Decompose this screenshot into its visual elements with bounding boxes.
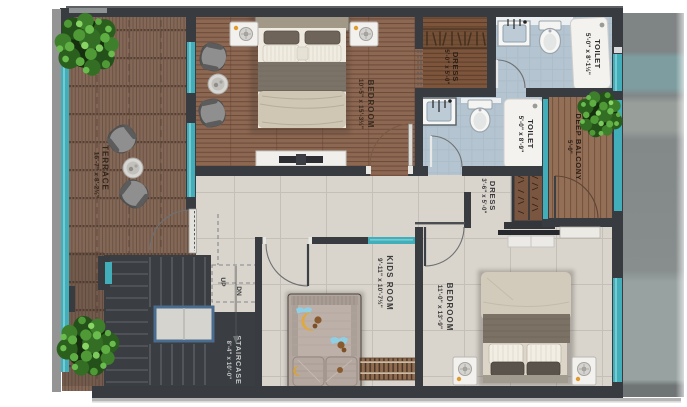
svg-text:5'-0" x 8'-1½": 5'-0" x 8'-1½" (584, 33, 592, 75)
svg-text:KIDS ROOM: KIDS ROOM (385, 255, 394, 310)
svg-text:5'-0" x 8'-9": 5'-0" x 8'-9" (517, 116, 524, 153)
svg-text:5'-0": 5'-0" (566, 140, 572, 154)
svg-text:TOILET: TOILET (526, 119, 535, 149)
svg-text:16'-7" x 8'-2½": 16'-7" x 8'-2½" (93, 152, 101, 199)
svg-text:11'-0" x 13'-9": 11'-0" x 13'-9" (436, 285, 443, 329)
svg-text:STAIRCASE: STAIRCASE (234, 335, 243, 384)
svg-text:DRESS: DRESS (451, 52, 460, 82)
svg-text:8'-4" x 10'-0": 8'-4" x 10'-0" (225, 341, 231, 380)
svg-text:3'-6" x 5'-0": 3'-6" x 5'-0" (480, 178, 486, 213)
svg-text:BEDROOM: BEDROOM (366, 80, 375, 129)
svg-text:TERRACE: TERRACE (101, 145, 110, 191)
svg-text:5'-0" x 5'-0": 5'-0" x 5'-0" (443, 49, 449, 84)
svg-text:BEDROOM: BEDROOM (445, 283, 454, 332)
svg-text:9'-11" x 10'-7½": 9'-11" x 10'-7½" (376, 258, 384, 308)
svg-text:TOILET: TOILET (593, 39, 602, 69)
svg-text:DRESS: DRESS (488, 181, 497, 211)
svg-text:UP: UP (219, 277, 226, 287)
svg-text:10'-5" x 15'-3½": 10'-5" x 15'-3½" (357, 79, 365, 129)
svg-text:DN: DN (235, 286, 242, 296)
